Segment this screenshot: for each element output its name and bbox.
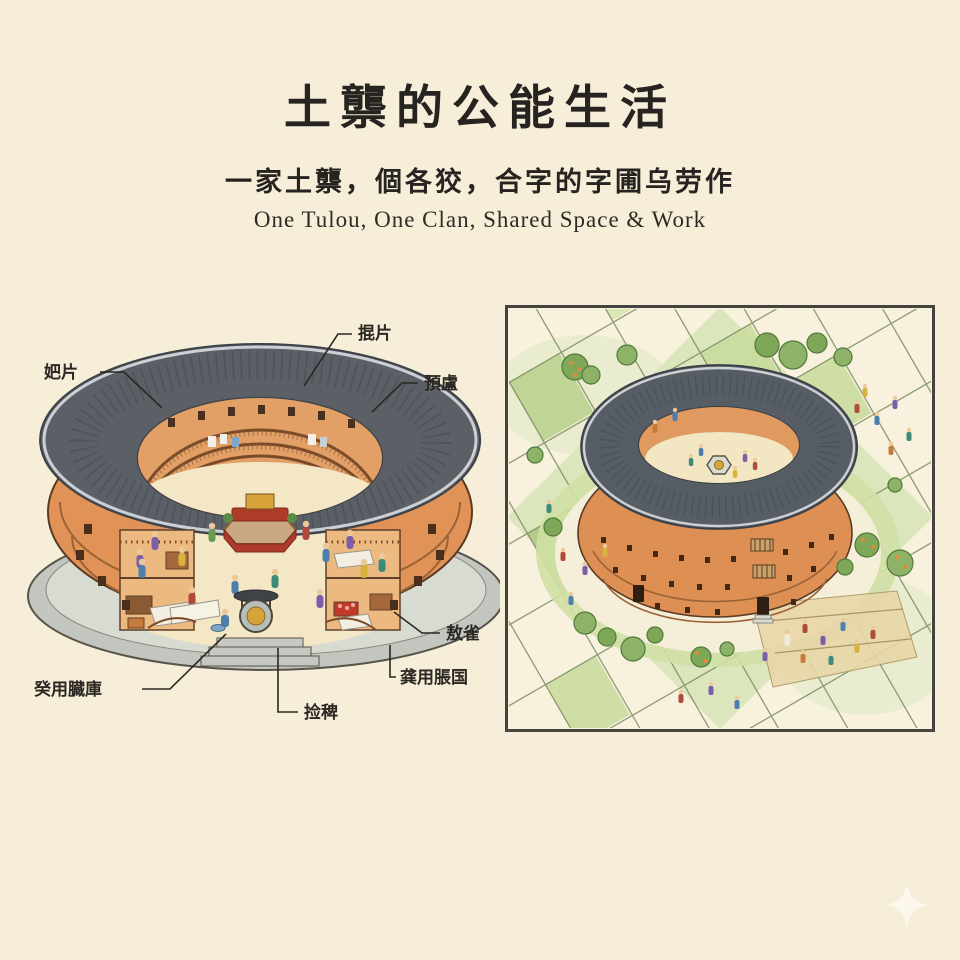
tulou-aerial-illustration xyxy=(505,305,935,733)
label-roof-tile-left: 妑片 xyxy=(44,362,78,382)
label-roof-tile-top: 掍片 xyxy=(358,323,392,343)
aerial-tulou xyxy=(578,365,857,623)
header: 土龒的公能生活 一家土龒，個各狡，合字的字圃乌劳作 One Tulou, One… xyxy=(0,0,960,233)
label-communal-granary: 癸用臓庫 xyxy=(33,679,102,699)
label-corridor: 預盧 xyxy=(424,373,458,393)
subtitle-chinese: 一家土龒，個各狡，合字的字圃乌劳作 xyxy=(0,160,960,199)
cut-room-right xyxy=(326,530,400,630)
tulou-cutaway-illustration: 妑片 掍片 預盧 敖雀 癸用臓庫 捡稗 龚用脹国 xyxy=(20,312,500,742)
subtitle-english: One Tulou, One Clan, Shared Space & Work xyxy=(0,207,960,233)
aerial-door-front xyxy=(757,597,769,615)
label-room-right: 敖雀 xyxy=(446,623,480,643)
sparkle-icon xyxy=(884,882,930,928)
label-communal-kitchen: 龚用脹国 xyxy=(400,667,468,687)
page-title: 土龒的公能生活 xyxy=(0,84,960,136)
aerial-door-left xyxy=(633,585,644,602)
label-well: 捡稗 xyxy=(304,702,338,722)
